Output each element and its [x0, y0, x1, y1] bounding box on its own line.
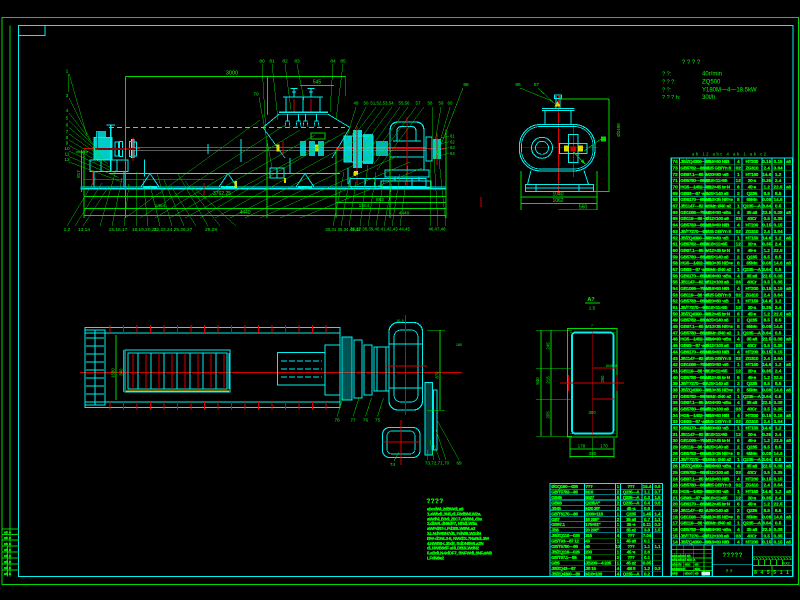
svg-text:2.4: 2.4 — [775, 242, 782, 247]
svg-text:M24×90 ·eBa: M24×90 ·eBa — [706, 337, 732, 342]
svg-text:Ø25 GB/Yn 8: Ø25 GB/Yn 8 — [706, 483, 732, 488]
svg-text:12: 12 — [736, 305, 742, 311]
svg-text:380: 380 — [589, 451, 597, 456]
svg-text:M12×45 te·N: M12×45 te·N — [706, 375, 731, 380]
svg-text:3.64: 3.64 — [762, 457, 771, 462]
svg-text:45: 45 — [673, 343, 679, 349]
svg-text:M24×90 ·eBa: M24×90 ·eBa — [706, 273, 732, 278]
svg-text:31: 31 — [673, 432, 679, 438]
svg-text:60: 60 — [448, 101, 453, 106]
svg-text:0.5: 0.5 — [775, 457, 782, 462]
svg-text:JB1147—82 ·e: JB1147—82 ·e — [680, 356, 708, 361]
svg-text:51,52,53,54: 51,52,53,54 — [370, 101, 394, 106]
svg-text:JB/T7270—94: JB/T7270—94 — [680, 229, 707, 234]
svg-text:Ø12×100 a8: Ø12×100 a8 — [706, 343, 730, 348]
svg-text:2: 2 — [737, 445, 740, 451]
svg-text:8: 8 — [737, 261, 740, 267]
svg-text:B18×11×65: B18×11×65 — [706, 432, 728, 437]
svg-text:2.4: 2.4 — [764, 483, 771, 488]
svg-text:1: 1 — [737, 394, 740, 400]
svg-text:abcd ab: abcd ab — [678, 554, 691, 558]
svg-text:M12×45 te·N: M12×45 te·N — [706, 311, 731, 316]
svg-text:16Mn Ø40 a2: 16Mn Ø40 a2 — [706, 521, 732, 526]
svg-text:02: 02 — [736, 292, 742, 298]
svg-text:26: 26 — [673, 464, 679, 470]
svg-text:8: 8 — [737, 387, 740, 393]
svg-text:35: 35 — [673, 407, 679, 413]
svg-text:62: 62 — [673, 235, 679, 241]
svg-text:18 205″: 18 205″ — [585, 517, 600, 522]
svg-text:22.5: 22.5 — [762, 210, 771, 215]
svg-text:22.5: 22.5 — [774, 185, 783, 190]
svg-text:JB1147—82 ·e: JB1147—82 ·e — [680, 204, 708, 209]
svg-text:48: 48 — [673, 324, 679, 330]
svg-text:0.35: 0.35 — [774, 216, 783, 221]
svg-text:0.08: 0.08 — [774, 337, 783, 342]
svg-text:0.2: 0.2 — [644, 571, 651, 576]
svg-text:M12×45 te·N: M12×45 te·N — [706, 438, 731, 443]
svg-text:2.4: 2.4 — [775, 305, 782, 310]
svg-text:0.35: 0.35 — [774, 470, 783, 475]
svg-text:0.3: 0.3 — [655, 566, 662, 571]
svg-text:175×51″: 175×51″ — [585, 522, 601, 527]
svg-text:4: 4 — [737, 273, 740, 279]
svg-text:1.1: 1.1 — [655, 544, 662, 549]
svg-text:6: 6 — [737, 502, 740, 508]
svg-text:03: 03 — [736, 280, 742, 286]
svg-text:abc: abc — [685, 562, 691, 566]
svg-text:M10×35 NE×e: M10×35 NE×e — [706, 387, 734, 392]
svg-text:18: 18 — [673, 514, 679, 520]
svg-text:17: 17 — [673, 521, 679, 527]
svg-text:M16: M16 — [585, 489, 594, 494]
svg-text:8: 8 — [66, 135, 69, 141]
svg-text:0.15: 0.15 — [762, 413, 771, 418]
svg-text:30t/h: 30t/h — [702, 95, 715, 101]
svg-text:16,5: 16,5 — [396, 319, 403, 323]
svg-text:a8: a8 — [786, 489, 791, 494]
svg-text:87: 87 — [534, 82, 540, 88]
svg-text:0.35: 0.35 — [762, 368, 771, 373]
svg-text:JB/T7270—94: JB/T7270—94 — [680, 305, 707, 310]
svg-text:45t 8: 45t 8 — [627, 566, 636, 571]
svg-text:4: 4 — [737, 400, 740, 406]
svg-text:22.5: 22.5 — [774, 248, 783, 253]
svg-text:Q235: Q235 — [626, 511, 636, 516]
svg-text:0.35: 0.35 — [762, 495, 771, 500]
svg-text:560: 560 — [579, 204, 588, 210]
svg-text:B18×11×65: B18×11×65 — [706, 178, 728, 183]
svg-text:Ø2498: Ø2498 — [616, 123, 621, 137]
svg-text:250: 250 — [600, 375, 605, 383]
svg-text:315: 315 — [585, 533, 592, 538]
svg-text:28: 28 — [673, 451, 679, 457]
svg-text:? ? ?:: ? ? ?: — [662, 79, 676, 85]
svg-text:30: 30 — [673, 438, 679, 444]
svg-text:03: 03 — [736, 407, 742, 413]
svg-text:1564: 1564 — [359, 203, 370, 209]
svg-text:4: 4 — [737, 210, 740, 216]
svg-text:Q235—A: Q235—A — [623, 495, 640, 500]
svg-text:4440: 4440 — [239, 210, 250, 216]
svg-text:a8: a8 — [786, 311, 791, 316]
svg-text:1.2: 1.2 — [775, 235, 782, 240]
svg-text:7: 7 — [591, 324, 593, 328]
svg-text:M12×45 te·N: M12×45 te·N — [706, 248, 731, 253]
svg-text:kX2: kX2 — [783, 562, 790, 566]
svg-text:63: 63 — [450, 145, 455, 150]
svg-text:45 ·a: 45 ·a — [627, 506, 636, 511]
svg-text:56: 56 — [673, 273, 679, 279]
svg-text:47: 47 — [673, 330, 679, 336]
svg-text:HT200: HT200 — [746, 413, 759, 418]
svg-text:45 a8: 45 a8 — [626, 539, 636, 544]
svg-text:180: 180 — [456, 343, 462, 347]
svg-text:40Cr: 40Cr — [747, 216, 757, 221]
svg-text:40Cr: 40Cr — [747, 407, 757, 412]
svg-text:M10×35 NE×e: M10×35 NE×e — [706, 261, 734, 266]
svg-text:Ø25 GB/Yn 8: Ø25 GB/Yn 8 — [706, 356, 732, 361]
svg-text:3.64: 3.64 — [762, 204, 771, 209]
svg-text:M20×80 ·aB: M20×80 ·aB — [706, 489, 730, 494]
svg-text:60: 60 — [673, 248, 679, 254]
svg-text:45 ·e: 45 ·e — [627, 550, 636, 555]
svg-text:14.6: 14.6 — [774, 261, 783, 266]
svg-text:1: 1 — [737, 330, 740, 336]
svg-text:ØGQ160—026: ØGQ160—026 — [551, 484, 578, 489]
svg-text:1.2: 1.2 — [764, 185, 771, 190]
svg-text:35 a8: 35 a8 — [747, 464, 758, 469]
svg-text:M12×45 te·N: M12×45 te·N — [706, 502, 731, 507]
svg-text:8: 8 — [737, 514, 740, 520]
svg-text:0.11: 0.11 — [643, 522, 652, 527]
svg-text:35 a8: 35 a8 — [747, 210, 758, 215]
svg-text:0.08: 0.08 — [762, 451, 771, 456]
svg-text:20·a: 20·a — [748, 368, 757, 373]
svg-text:1062: 1062 — [552, 198, 563, 204]
svg-text:20·a: 20·a — [748, 242, 757, 247]
svg-text:1.2: 1.2 — [764, 311, 771, 316]
svg-text:A25×140 a8: A25×140 a8 — [706, 254, 729, 259]
svg-text:0.15: 0.15 — [762, 476, 771, 481]
svg-text:2000×118: 2000×118 — [585, 511, 603, 516]
svg-text:1580: 1580 — [111, 368, 116, 378]
svg-text:49: 49 — [673, 318, 679, 324]
svg-text:M12×45 te·N: M12×45 te·N — [706, 185, 731, 190]
svg-text:4: 4 — [737, 464, 740, 470]
svg-text:JB8: JB8 — [551, 528, 559, 533]
svg-text:4: 4 — [66, 108, 69, 114]
svg-text:57: 57 — [673, 267, 679, 273]
svg-text:GB7: GB7 — [551, 517, 560, 522]
svg-text:8.5: 8.5 — [764, 254, 771, 259]
svg-text:JB/T7270—94: JB/T7270—94 — [680, 533, 707, 538]
svg-text:0.08: 0.08 — [762, 197, 771, 202]
svg-text:0.08: 0.08 — [774, 210, 783, 215]
svg-text:JB/T7270—94: JB/T7270—94 — [680, 457, 707, 462]
svg-text:65Mn: 65Mn — [746, 197, 757, 202]
svg-text:45·e: 45·e — [748, 375, 757, 380]
svg-text:69: 69 — [673, 191, 679, 197]
svg-text:0.08: 0.08 — [774, 273, 783, 278]
svg-text:Ø12×100 a8: Ø12×100 a8 — [706, 280, 730, 285]
svg-text:22,23,24,25,26,27: 22,23,24,25,26,27 — [154, 227, 193, 233]
svg-text:215: 215 — [546, 376, 551, 384]
svg-text:0.15: 0.15 — [774, 286, 783, 291]
svg-text:35 a8: 35 a8 — [747, 273, 758, 278]
svg-text:HT150: HT150 — [746, 172, 759, 177]
svg-text:3.64: 3.64 — [762, 394, 771, 399]
svg-text:ZG310: ZG310 — [745, 483, 759, 488]
svg-text:JB1147—82 ·e: JB1147—82 ·e — [680, 432, 708, 437]
svg-text:4: 4 — [737, 476, 740, 482]
svg-text:51: 51 — [673, 305, 679, 311]
svg-text:0.08: 0.08 — [762, 514, 771, 519]
svg-text:GB5: GB5 — [551, 560, 560, 565]
svg-text:A25×140 a8: A25×140 a8 — [706, 318, 729, 323]
svg-text:0.15: 0.15 — [774, 349, 783, 354]
svg-text:4: 4 — [737, 223, 740, 229]
svg-text:3.64: 3.64 — [774, 165, 783, 170]
svg-text:840: 840 — [119, 368, 124, 376]
svg-text:1.1: 1.1 — [655, 517, 662, 522]
svg-text:46,47,48: 46,47,48 — [428, 227, 446, 232]
svg-text:GB97.1—85 ·e: GB97.1—85 ·e — [680, 324, 708, 329]
svg-text:6: 6 — [737, 248, 740, 254]
svg-text:1: 1 — [737, 457, 740, 463]
svg-text:16Mn Ø40 a2: 16Mn Ø40 a2 — [706, 330, 732, 335]
svg-text:58: 58 — [428, 101, 433, 106]
svg-text:Q235—A: Q235—A — [743, 204, 762, 209]
svg-text:Ø12×100 a8: Ø12×100 a8 — [706, 533, 730, 538]
svg-text:02: 02 — [736, 229, 742, 235]
svg-text:25: 25 — [673, 470, 679, 476]
svg-text:2.4: 2.4 — [775, 368, 782, 373]
svg-text:8.5: 8.5 — [764, 318, 771, 323]
svg-text:ab c: ab c — [4, 536, 11, 540]
svg-text:45·e: 45·e — [748, 185, 757, 190]
svg-text:4: 4 — [737, 337, 740, 343]
svg-text:20: 20 — [673, 502, 679, 508]
svg-text:88: 88 — [463, 82, 469, 88]
svg-text:0.5: 0.5 — [764, 343, 771, 348]
svg-text:4440: 4440 — [399, 210, 410, 216]
svg-text:40r/min: 40r/min — [702, 72, 722, 78]
svg-text:80: 80 — [259, 59, 265, 65]
svg-text:a8: a8 — [786, 210, 791, 215]
svg-text:2.4: 2.4 — [764, 292, 771, 297]
svg-text:B18×11×65: B18×11×65 — [706, 368, 728, 373]
svg-text:35 a8: 35 a8 — [626, 517, 636, 522]
svg-text:???: ??? — [627, 533, 635, 538]
svg-text:200: 200 — [585, 550, 592, 555]
svg-text:8: 8 — [754, 570, 757, 576]
svg-text:77: 77 — [350, 418, 356, 424]
svg-text:a8: a8 — [786, 464, 791, 469]
svg-text:205: 205 — [546, 411, 551, 419]
svg-text:81: 81 — [269, 59, 275, 65]
svg-text:0.5: 0.5 — [775, 330, 782, 335]
svg-text:73,72,71,70: 73,72,71,70 — [425, 461, 450, 466]
svg-text:1: 1 — [737, 172, 740, 178]
svg-text:4: 4 — [761, 570, 764, 576]
svg-text:5: 5 — [767, 570, 770, 576]
svg-text:7: 7 — [66, 129, 69, 135]
svg-text:40Cr: 40Cr — [747, 470, 757, 475]
svg-text:0.35: 0.35 — [762, 305, 771, 310]
svg-text:3.64: 3.64 — [762, 267, 771, 272]
svg-text:Q235—A: Q235—A — [743, 521, 762, 526]
svg-text:0.15: 0.15 — [762, 286, 771, 291]
svg-text:1.45: 1.45 — [643, 511, 652, 516]
svg-text:a8: a8 — [786, 159, 791, 164]
svg-text:0.7: 0.7 — [655, 489, 662, 494]
svg-text:0.5: 0.5 — [764, 216, 771, 221]
svg-text:a8: a8 — [786, 362, 791, 367]
svg-text:41: 41 — [673, 368, 679, 374]
svg-text:40Cr: 40Cr — [747, 343, 757, 348]
svg-text:23: 23 — [673, 483, 679, 489]
svg-text:55: 55 — [673, 280, 679, 286]
svg-text:0.5: 0.5 — [764, 280, 771, 285]
svg-text:9: 9 — [66, 141, 69, 147]
svg-text:M20×80 ·aB: M20×80 ·aB — [706, 172, 730, 177]
svg-text:GB97.1—85 ·e: GB97.1—85 ·e — [680, 476, 708, 481]
svg-text:2.4: 2.4 — [764, 229, 771, 234]
svg-text:14.6: 14.6 — [762, 362, 771, 367]
svg-text:Q235—A: Q235—A — [743, 330, 762, 335]
svg-text:0.35: 0.35 — [762, 178, 771, 183]
svg-text:22: 22 — [673, 489, 679, 495]
svg-text:Q235: Q235 — [747, 318, 758, 323]
svg-text:8: 8 — [737, 197, 740, 203]
svg-text:M20×80 ·aB: M20×80 ·aB — [706, 426, 730, 431]
svg-text:53: 53 — [673, 292, 679, 298]
svg-text:Ø12×100 a8: Ø12×100 a8 — [706, 407, 730, 412]
svg-text:A25×140 a8: A25×140 a8 — [706, 445, 729, 450]
svg-text:M16×60 NIB: M16×60 NIB — [706, 476, 730, 481]
svg-text:1464: 1464 — [155, 203, 166, 209]
svg-text:M8: M8 — [585, 555, 591, 560]
svg-text:a8: a8 — [786, 286, 791, 291]
svg-text:178: 178 — [578, 444, 586, 449]
svg-text:03: 03 — [736, 533, 742, 539]
svg-text:3.64: 3.64 — [774, 356, 783, 361]
svg-text:GB97.1: GB97.1 — [551, 522, 565, 527]
svg-text:3.64: 3.64 — [762, 330, 771, 335]
svg-text:1: 1 — [737, 521, 740, 527]
svg-text:1.2: 1.2 — [764, 438, 771, 443]
svg-text:Q235: Q235 — [747, 254, 758, 259]
svg-text:M20×80 ·aB: M20×80 ·aB — [706, 235, 730, 240]
svg-text:Q235—A: Q235—A — [743, 394, 762, 399]
svg-text:7.04: 7.04 — [643, 533, 652, 538]
svg-text:22.5: 22.5 — [774, 311, 783, 316]
svg-text:50: 50 — [364, 101, 369, 106]
svg-text:0.1: 0.1 — [644, 539, 651, 544]
svg-text:a8: a8 — [786, 185, 791, 190]
svg-text:a8: a8 — [786, 514, 791, 519]
svg-text:0.5: 0.5 — [764, 533, 771, 538]
svg-text:M24×90 ·eBa: M24×90 ·eBa — [706, 464, 732, 469]
svg-text:13,14: 13,14 — [78, 227, 90, 233]
svg-text:Q235—A: Q235—A — [743, 267, 762, 272]
svg-text:0.35: 0.35 — [774, 280, 783, 285]
svg-text:ZG310: ZG310 — [745, 292, 759, 297]
svg-text:1: 1 — [786, 570, 789, 576]
svg-text:0.3: 0.3 — [655, 522, 662, 527]
svg-text:65Mn: 65Mn — [746, 324, 757, 329]
svg-text:22.5: 22.5 — [774, 375, 783, 380]
svg-text:0.5: 0.5 — [764, 470, 771, 475]
svg-text:8.5: 8.5 — [775, 254, 782, 259]
svg-text:M24×90 ·eBa: M24×90 ·eBa — [706, 400, 732, 405]
svg-text:15: 15 — [673, 533, 679, 539]
svg-text:21: 21 — [673, 495, 679, 501]
svg-text:Ø25 GB/Yn 8: Ø25 GB/Yn 8 — [706, 292, 732, 297]
svg-text:03: 03 — [736, 216, 742, 222]
svg-text:33: 33 — [673, 419, 679, 425]
svg-text:16Mn Ø40 a2: 16Mn Ø40 a2 — [706, 394, 732, 399]
svg-text:Ø25 GB/Yn 8: Ø25 GB/Yn 8 — [706, 229, 732, 234]
svg-text:63: 63 — [673, 229, 679, 235]
svg-text:65Mn: 65Mn — [746, 387, 757, 392]
svg-text:ab c: ab c — [4, 566, 11, 570]
svg-text:59: 59 — [673, 254, 679, 260]
svg-text:2: 2 — [737, 508, 740, 514]
svg-text:A25×140 a8: A25×140 a8 — [706, 508, 729, 513]
svg-text:Q235—A: Q235—A — [623, 500, 640, 505]
svg-text:8.5: 8.5 — [775, 508, 782, 513]
svg-text:ZG310: ZG310 — [745, 356, 759, 361]
svg-text:Ø25 GB/Yn 8: Ø25 GB/Yn 8 — [706, 165, 732, 170]
svg-text:abc: abc — [695, 567, 701, 571]
svg-text:0.08: 0.08 — [774, 464, 783, 469]
svg-text:2.4: 2.4 — [775, 495, 782, 500]
svg-text:22.5: 22.5 — [762, 337, 771, 342]
svg-text:2.6: 2.6 — [644, 550, 651, 555]
svg-text:????: ???? — [427, 498, 444, 505]
svg-text:68: 68 — [673, 197, 679, 203]
svg-text:67: 67 — [673, 204, 679, 210]
svg-text:GB/T6170—86: GB/T6170—86 — [551, 511, 578, 516]
svg-text:M10×35 NE×e: M10×35 NE×e — [706, 324, 734, 329]
svg-text:3.64: 3.64 — [774, 419, 783, 424]
svg-text:A25×140 a8: A25×140 a8 — [706, 191, 729, 196]
svg-text:2.4: 2.4 — [764, 356, 771, 361]
svg-text:0.15: 0.15 — [762, 349, 771, 354]
svg-text:M10×100: M10×100 — [585, 571, 603, 576]
svg-text:82: 82 — [282, 59, 288, 65]
svg-text:20·a: 20·a — [748, 495, 757, 500]
svg-text:ZG310: ZG310 — [745, 419, 759, 424]
svg-text:45·e: 45·e — [748, 311, 757, 316]
svg-text:ZQ500: ZQ500 — [702, 79, 721, 85]
svg-text:2.4: 2.4 — [775, 432, 782, 437]
svg-text:45 a2: 45 a2 — [626, 560, 636, 565]
svg-text:45·e: 45·e — [748, 502, 757, 507]
svg-text:B18×11×65: B18×11×65 — [706, 495, 728, 500]
svg-text:1.5: 1.5 — [655, 495, 662, 500]
svg-text:0.4: 0.4 — [644, 500, 651, 505]
svg-text:6: 6 — [737, 311, 740, 317]
svg-text:Ø12×100 a8: Ø12×100 a8 — [706, 216, 730, 221]
svg-text:3.64: 3.64 — [774, 292, 783, 297]
svg-text:5527: 5527 — [585, 495, 595, 500]
svg-text:39: 39 — [673, 381, 679, 387]
svg-text:4: 4 — [737, 527, 740, 533]
svg-text:42: 42 — [673, 362, 679, 368]
